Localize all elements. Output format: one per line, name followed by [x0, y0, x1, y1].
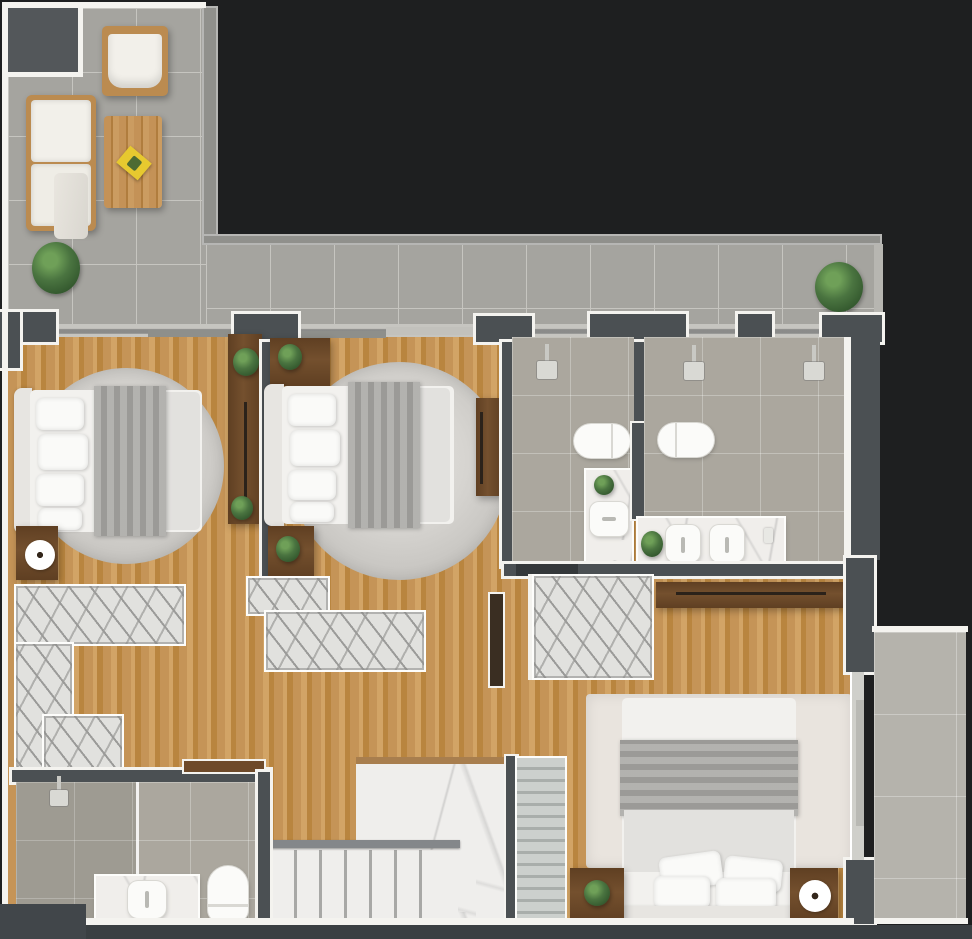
floor-plan	[0, 0, 972, 939]
bedroom3-dresser	[656, 582, 846, 608]
sliding-panel-1	[148, 330, 238, 337]
closet2-run-bottom	[266, 612, 424, 670]
bathroom2-shower-head-2	[804, 362, 824, 380]
terrace-plant-right	[815, 262, 863, 312]
magazine-print	[126, 155, 142, 171]
bedroom2-pillow-2	[290, 430, 340, 466]
terrace-plant-left	[32, 242, 80, 294]
bathroom3-shower-head	[50, 790, 68, 806]
corridor-door-leaf	[490, 594, 503, 686]
terrace-parapet-top	[202, 234, 882, 245]
bottom-dark-band	[0, 925, 972, 939]
sliding-panel-2	[298, 331, 386, 338]
bathroom2-cup	[764, 528, 773, 543]
bedroom2-pillow-1	[288, 394, 336, 426]
walkin-closet-run-top	[16, 586, 184, 644]
sofa-throw-blanket	[54, 173, 88, 239]
balcony-floor	[874, 632, 966, 920]
building-core-block	[8, 8, 83, 77]
bathroom2-sink-1	[666, 525, 700, 562]
wall-between-bathrooms	[632, 423, 644, 519]
closet2-run-top	[248, 578, 328, 614]
bathroom1-shower-arm	[545, 344, 549, 362]
outer-wall-left	[2, 2, 8, 922]
bathroom3-faucet	[145, 891, 149, 908]
bathroom1-faucet	[602, 517, 616, 521]
magazine	[116, 146, 152, 181]
balcony-bottom-edge	[874, 918, 968, 924]
bedroom3-dresser-handle	[676, 592, 826, 595]
stair-nosing-strip	[356, 757, 506, 764]
bedroom2-plant-bottom	[276, 536, 300, 562]
bedroom1-pillow-1	[36, 398, 84, 430]
bedroom1-pillow-3	[36, 474, 84, 506]
bathroom3-toilet	[208, 866, 248, 922]
bathroom2-shower-arm-2	[812, 345, 816, 363]
bathroom1-door-threshold	[516, 564, 578, 576]
terrace-sofa	[26, 95, 96, 231]
outer-wall-right-upper	[848, 342, 880, 560]
bathroom1-sink	[590, 502, 628, 536]
bedroom3-right-pier-top	[846, 558, 874, 672]
bathroom2-sink-2	[710, 525, 744, 562]
sliding-panel-3	[386, 327, 478, 335]
bathroom2-shower-arm-1	[692, 345, 696, 363]
terrace-floor-horizontal	[206, 244, 882, 330]
stair-handrail	[268, 840, 460, 848]
bathroom2-shower-head-1	[684, 362, 704, 380]
sofa-cushion-top	[31, 100, 91, 162]
bedroom2-pillow-3	[288, 470, 336, 500]
outer-wall-top	[2, 2, 206, 8]
stair-flight-wide	[272, 850, 458, 922]
bathroom3-sink	[128, 881, 166, 918]
bathroom1-plant	[594, 475, 614, 495]
bathroom3-door-leaf	[184, 761, 264, 772]
bedroom2-bed	[264, 384, 456, 526]
wall-bedroom2-bathroom1	[502, 342, 512, 566]
bathroom3-right-wall	[258, 772, 270, 924]
bathroom1-shower-head	[537, 361, 557, 379]
bathroom1-toilet	[574, 424, 630, 458]
bedroom1-plant-top	[233, 348, 259, 376]
bottom-left-block	[0, 904, 86, 939]
bedroom3-pillow-3	[654, 876, 710, 908]
stair-flight-narrow	[517, 758, 565, 926]
walkin-closet-run-bottom	[44, 716, 122, 774]
bathroom2-faucet-2	[725, 537, 729, 553]
bathroom2-faucet-1	[681, 537, 685, 553]
terrace-coffee-table	[104, 116, 162, 208]
bedroom2-headboard	[264, 384, 284, 526]
bathroom2-toilet	[658, 423, 714, 457]
bedroom3-flower-decor	[799, 880, 831, 912]
bedroom3-plant	[584, 880, 610, 906]
bedroom3-duvet	[620, 740, 798, 816]
bedroom3-bed	[620, 698, 798, 926]
bedroom1-flower-decor	[25, 540, 55, 570]
bathroom2-plant	[641, 531, 663, 557]
bedroom1-bed	[14, 388, 204, 534]
bedroom3-right-pier-bottom	[846, 860, 874, 924]
outer-wall-bottom	[6, 918, 854, 925]
stair-flight2-wall	[506, 756, 517, 926]
terrace-parapet-right	[202, 6, 218, 240]
armchair-cushion	[108, 34, 162, 88]
bathroom2-right-wall	[844, 337, 851, 569]
bedroom2-pillow-4	[290, 502, 334, 522]
bedroom2-wardrobe-handle	[480, 412, 483, 484]
bedroom1-pillow-2	[38, 434, 88, 470]
bedroom1-plant-bottom	[231, 496, 253, 520]
bedroom2-throw-blanket	[348, 382, 420, 528]
closet3-run	[534, 576, 652, 678]
balcony-sliding-door-panel	[856, 700, 864, 826]
terrace-armchair	[102, 26, 168, 96]
bedroom2-plant-top	[278, 344, 302, 370]
bedroom1-throw-blanket	[94, 386, 166, 536]
